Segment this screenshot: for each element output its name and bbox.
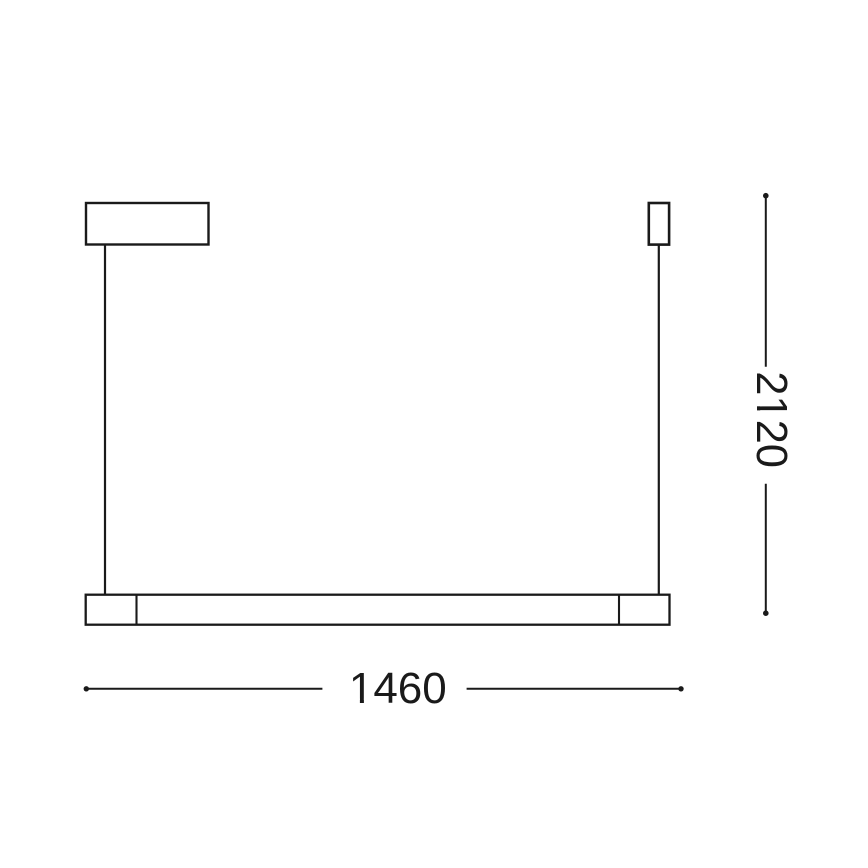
svg-text:2120: 2120	[747, 371, 795, 468]
svg-text:1460: 1460	[349, 664, 447, 713]
